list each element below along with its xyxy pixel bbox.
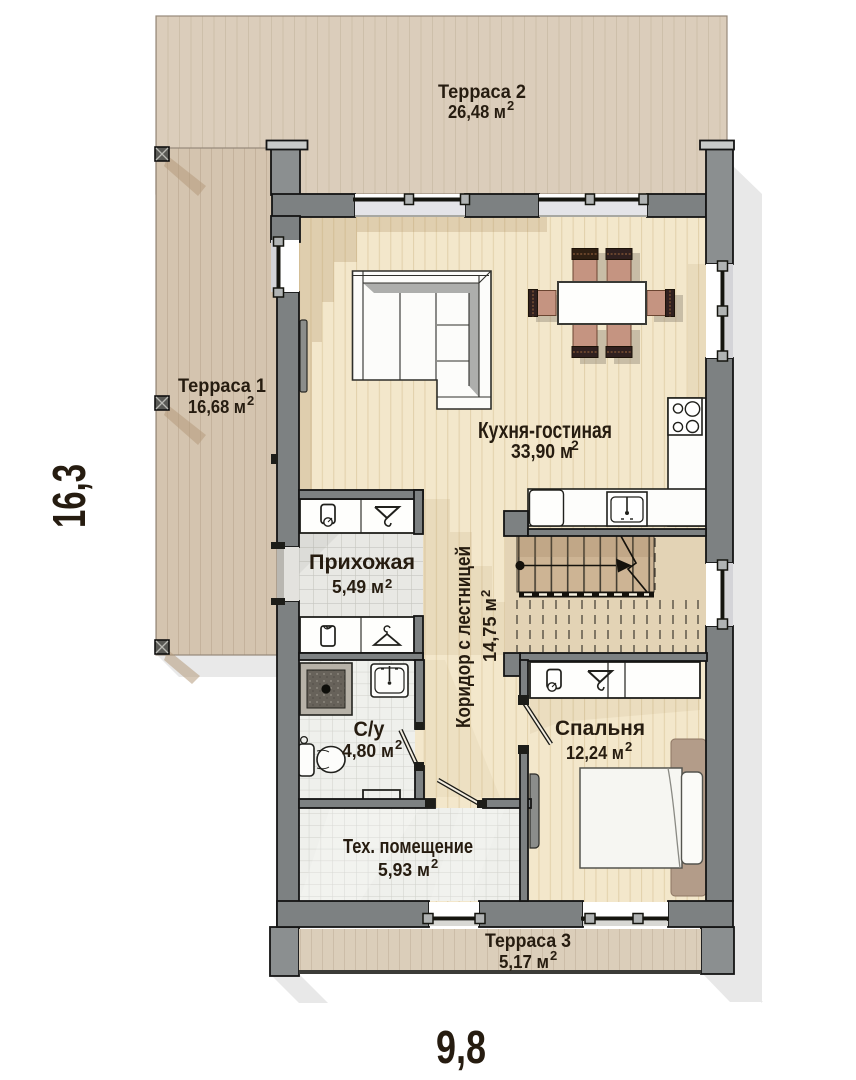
- svg-text:16,3: 16,3: [43, 464, 95, 528]
- svg-text:2: 2: [431, 856, 438, 871]
- svg-text:9,8: 9,8: [436, 1021, 486, 1073]
- svg-text:Терраса 3: Терраса 3: [485, 931, 571, 952]
- svg-text:Тех. помещение: Тех. помещение: [343, 836, 473, 858]
- svg-text:2: 2: [625, 739, 632, 754]
- svg-text:12,24 м: 12,24 м: [566, 742, 624, 763]
- svg-text:2: 2: [571, 437, 579, 453]
- svg-text:Кухня-гостиная: Кухня-гостиная: [478, 417, 612, 443]
- svg-text:5,93 м: 5,93 м: [378, 859, 430, 880]
- svg-text:2: 2: [247, 393, 254, 408]
- svg-text:26,48 м: 26,48 м: [448, 101, 506, 122]
- svg-text:2: 2: [507, 98, 514, 113]
- svg-text:Спальня: Спальня: [555, 717, 645, 740]
- svg-text:2: 2: [550, 948, 557, 963]
- svg-text:5,17 м: 5,17 м: [499, 952, 549, 972]
- svg-text:Прихожая: Прихожая: [309, 551, 415, 574]
- svg-text:С/у: С/у: [354, 718, 385, 741]
- svg-text:5,49 м: 5,49 м: [332, 576, 384, 597]
- svg-text:33,90 м: 33,90 м: [511, 441, 573, 463]
- svg-text:2: 2: [385, 576, 392, 591]
- svg-text:16,68 м: 16,68 м: [188, 396, 246, 417]
- svg-text:4,80 м: 4,80 м: [342, 740, 394, 761]
- svg-text:Коридор с лестницей: Коридор с лестницей: [452, 546, 475, 728]
- svg-text:14,75 м: 14,75 м: [479, 598, 500, 662]
- svg-text:2: 2: [395, 737, 402, 752]
- svg-text:2: 2: [478, 590, 493, 597]
